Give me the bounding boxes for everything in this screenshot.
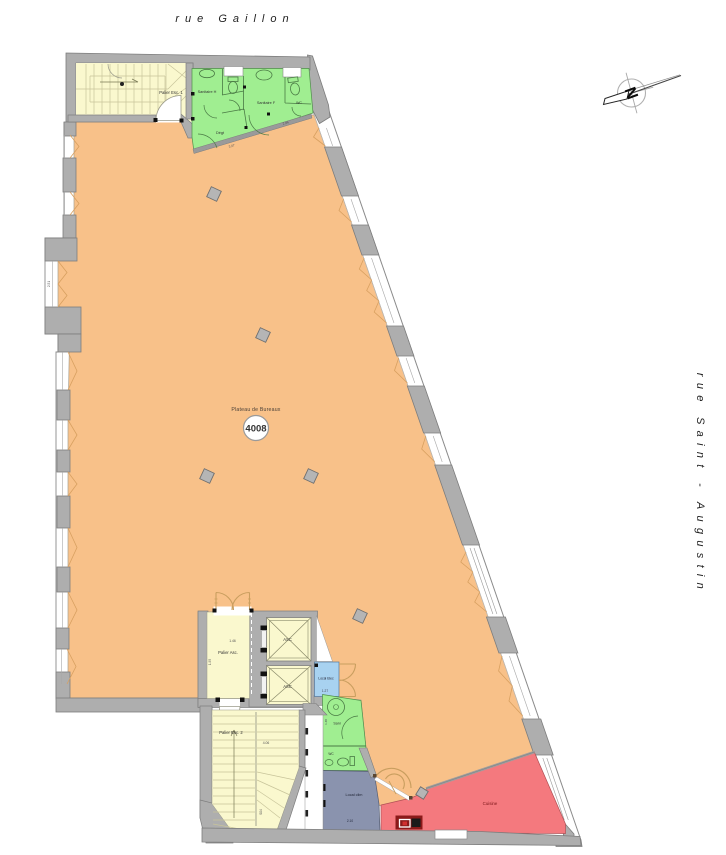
svg-text:Palier Asc.: Palier Asc. <box>218 650 238 655</box>
svg-text:rue Gaillon: rue Gaillon <box>175 13 294 25</box>
svg-text:Cuisine: Cuisine <box>483 801 498 806</box>
svg-text:S04: S04 <box>259 809 263 815</box>
svg-text:1.48: 1.48 <box>324 719 328 725</box>
svg-text:1.27: 1.27 <box>322 689 328 693</box>
svg-text:4008: 4008 <box>245 424 266 435</box>
svg-text:Palier Esc. 1: Palier Esc. 1 <box>159 90 183 95</box>
svg-text:ASC: ASC <box>283 684 292 689</box>
svg-text:Dégt: Dégt <box>216 131 225 135</box>
svg-text:Sanitaire H: Sanitaire H <box>198 90 217 94</box>
svg-text:Plateau de Bureaux: Plateau de Bureaux <box>231 407 280 413</box>
svg-text:WC: WC <box>328 752 334 756</box>
svg-text:Sani: Sani <box>333 722 340 726</box>
svg-text:WC: WC <box>296 101 302 105</box>
svg-text:ASC: ASC <box>283 637 292 642</box>
svg-text:Local clim: Local clim <box>346 793 363 797</box>
svg-text:1.95: 1.95 <box>208 659 212 665</box>
svg-text:1.46: 1.46 <box>229 639 236 643</box>
svg-text:2.51: 2.51 <box>47 281 51 287</box>
svg-text:4.06: 4.06 <box>263 741 270 745</box>
svg-text:Palier Esc. 2: Palier Esc. 2 <box>219 730 243 735</box>
svg-text:Sanitaire F: Sanitaire F <box>257 101 276 105</box>
svg-text:2.10: 2.10 <box>347 819 353 823</box>
svg-text:Local Elec: Local Elec <box>318 677 334 681</box>
svg-text:rue Saint - Augustin: rue Saint - Augustin <box>694 373 706 595</box>
